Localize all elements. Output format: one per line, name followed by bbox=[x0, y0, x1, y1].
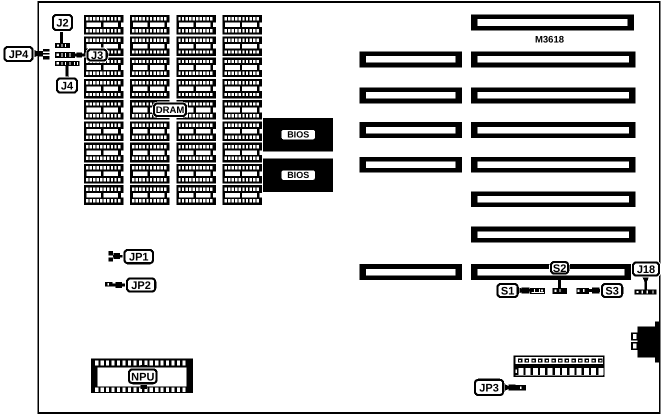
svg-text:S1: S1 bbox=[501, 285, 514, 297]
svg-text:J2: J2 bbox=[56, 17, 68, 29]
svg-text:BIOS: BIOS bbox=[287, 130, 309, 140]
svg-text:M3618: M3618 bbox=[535, 35, 564, 46]
svg-text:DRAM: DRAM bbox=[156, 105, 185, 116]
svg-text:J18: J18 bbox=[637, 264, 655, 276]
svg-text:J4: J4 bbox=[61, 80, 74, 92]
svg-text:S2: S2 bbox=[553, 263, 566, 275]
svg-text:S3: S3 bbox=[605, 285, 618, 297]
svg-text:JP1: JP1 bbox=[129, 252, 149, 264]
svg-text:NPU: NPU bbox=[131, 371, 154, 383]
svg-text:BIOS: BIOS bbox=[287, 170, 309, 180]
svg-text:JP2: JP2 bbox=[131, 280, 151, 292]
svg-text:JP3: JP3 bbox=[479, 382, 499, 394]
svg-text:J3: J3 bbox=[91, 50, 103, 62]
svg-text:JP4: JP4 bbox=[9, 49, 29, 61]
